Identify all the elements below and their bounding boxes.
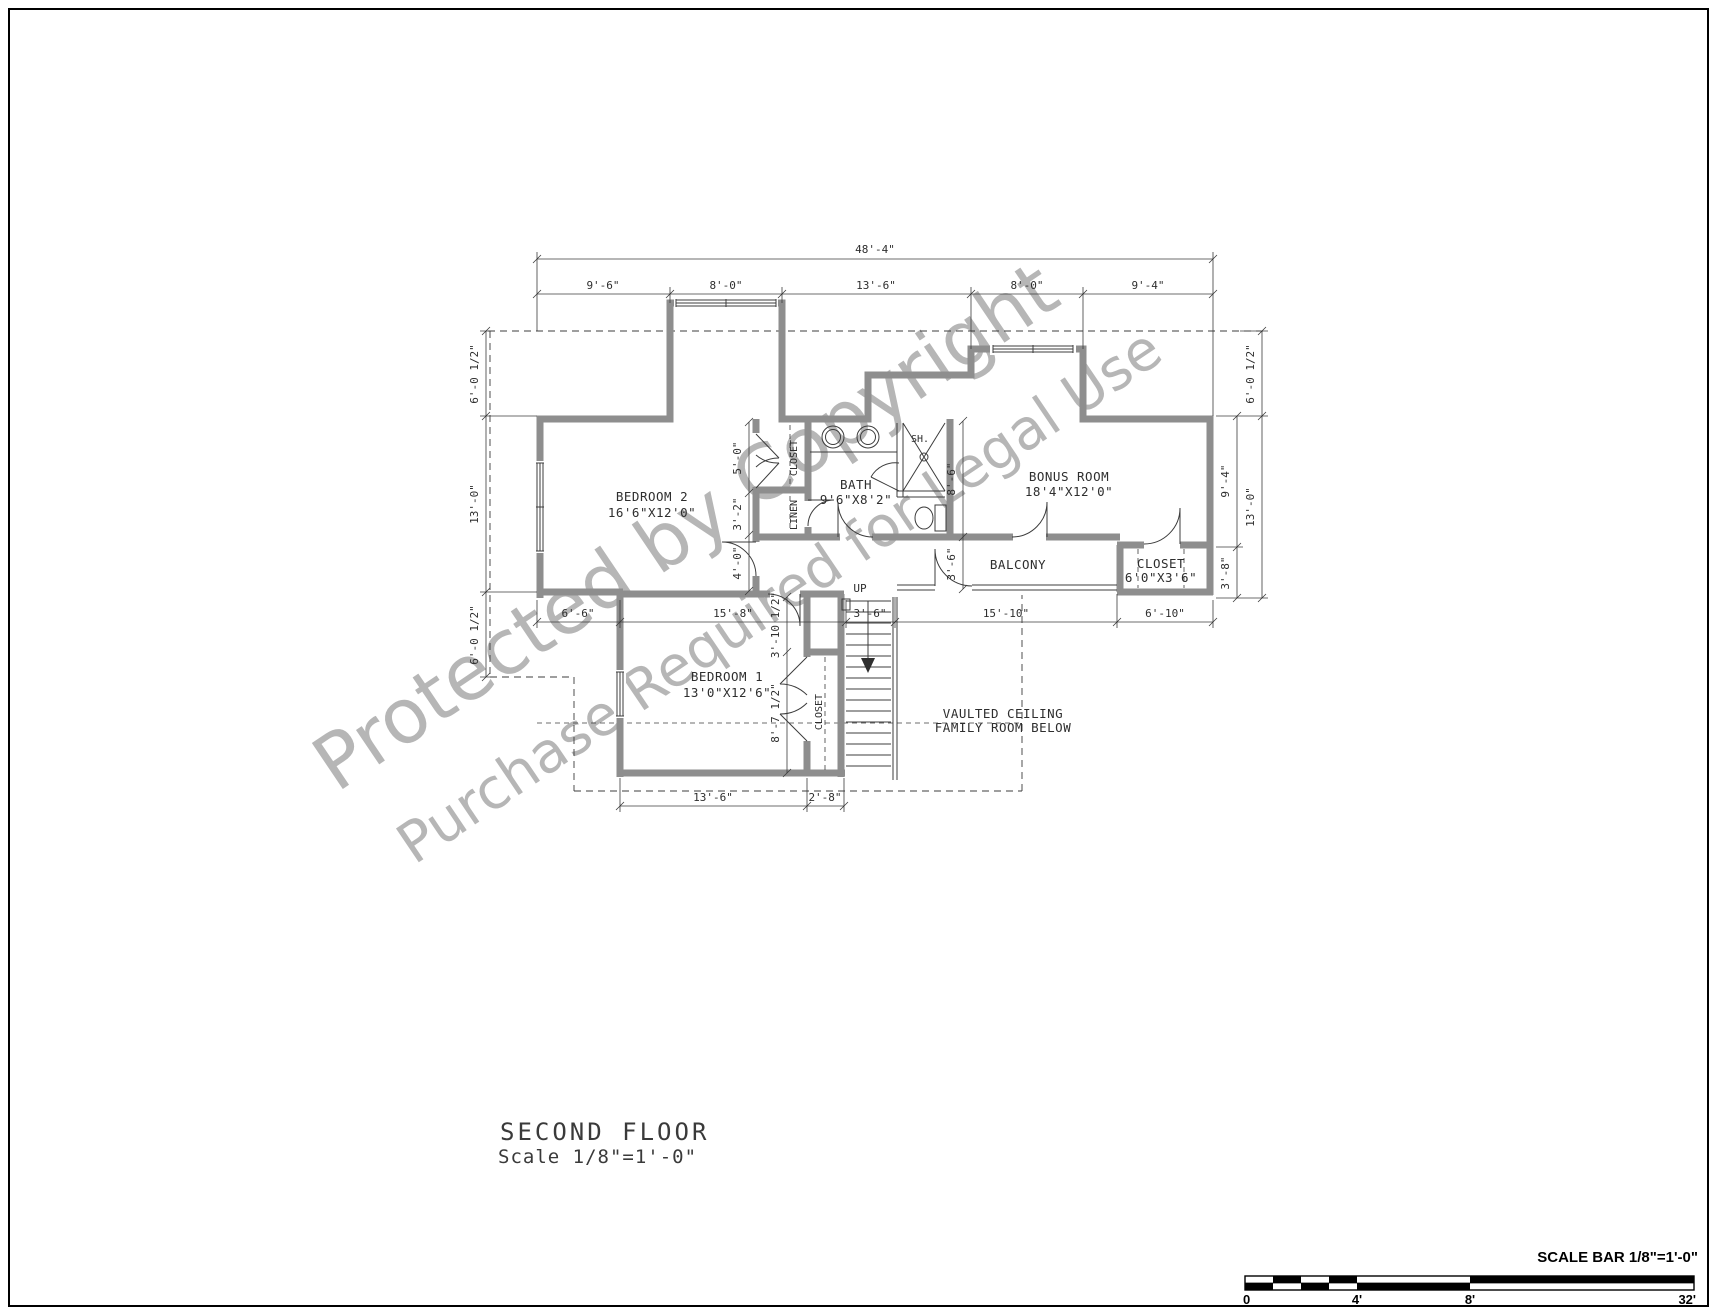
stair-down-arrow-icon: [861, 658, 875, 673]
dim-text: 9'-4": [1131, 279, 1164, 292]
label-bedroom1-size: 13'0"X12'6": [683, 685, 771, 700]
title-block: SECOND FLOOR Scale 1/8"=1'-0": [498, 1118, 709, 1168]
dim-text: 5'-0": [731, 441, 744, 474]
dim-text: 8'-6": [945, 462, 958, 495]
window-glyph: [676, 299, 776, 307]
railing-lines: [897, 585, 1117, 590]
label-bonus-size: 18'4"X12'0": [1025, 484, 1113, 499]
page-scale-note: Scale 1/8"=1'-0": [498, 1146, 697, 1168]
label-bath: BATH: [840, 477, 872, 492]
window-glyph: [616, 672, 624, 716]
window-bay-bonus: [990, 343, 1076, 355]
scale-bar: SCALE BAR 1/8"=1'-0" 0 4' 8' 32': [1243, 1249, 1698, 1307]
door-bonus-closet: [1144, 508, 1180, 544]
dim-text: 9'-4": [1219, 464, 1232, 497]
label-bath-size: 9'6"X8'2": [820, 492, 892, 507]
label-vaulted-ceiling: VAULTED CEILING: [943, 706, 1063, 721]
dim-text: 6'-6": [561, 607, 594, 620]
dim-text: 9'-6": [586, 279, 619, 292]
balcony-railing: [897, 585, 1117, 590]
label-bonus-closet-size: 6'0"X3'6": [1125, 570, 1197, 585]
dim-text: 3'-2": [731, 497, 744, 530]
dim-text: 6'-0 1/2": [468, 605, 481, 665]
dim-text: 13'-6": [856, 279, 896, 292]
scale-tick-8: 8': [1465, 1292, 1475, 1307]
label-bedroom1: BEDROOM 1: [691, 669, 763, 684]
window-glyph: [536, 463, 544, 551]
dim-text: 3'-10 1/2": [769, 592, 782, 658]
door-bedroom1-closet-double: [780, 657, 807, 741]
dim-text: 13'-6": [693, 791, 733, 804]
dim-text: 13'-0": [1244, 487, 1257, 527]
window-bedroom2-west: [534, 461, 546, 553]
dim-text: 8'-7 1/2": [769, 683, 782, 743]
dim-text: 6'-0 1/2": [468, 344, 481, 404]
label-balcony: BALCONY: [990, 557, 1046, 572]
floor-plan-svg: Protected by Copyright Purchase Required…: [0, 0, 1717, 1315]
label-shower: SH.: [911, 434, 929, 445]
scale-bar-label: SCALE BAR 1/8"=1'-0": [1537, 1249, 1698, 1266]
scale-bar-graphic: [1245, 1276, 1694, 1290]
dim-text: 3'-6": [945, 547, 958, 580]
dim-text: 48'-4": [855, 243, 895, 256]
dim-text: 4'-0": [731, 546, 744, 579]
window-glyph: [993, 345, 1073, 353]
label-bedroom2-closet: CLOSET: [789, 440, 800, 476]
dim-text: 6'-10": [1145, 607, 1185, 620]
dim-text: 15'-10": [983, 607, 1029, 620]
dim-bottom-row2: 13'-6" 2'-8": [616, 778, 848, 812]
drawing-sheet: Protected by Copyright Purchase Required…: [0, 0, 1717, 1315]
dim-text: 15'-8": [713, 607, 753, 620]
window-bay-bedroom2: [674, 297, 778, 309]
label-bonus-closet: CLOSET: [1137, 556, 1185, 571]
dim-text: 6'-0 1/2": [1244, 344, 1257, 404]
label-bedroom2: BEDROOM 2: [616, 489, 688, 504]
scale-tick-0: 0: [1243, 1292, 1250, 1307]
label-up: UP: [853, 582, 867, 595]
label-family-room-below: FAMILY ROOM BELOW: [935, 720, 1071, 735]
door-bonus-entry: [1012, 502, 1047, 537]
label-bedroom2-size: 16'6"X12'0": [608, 505, 696, 520]
label-bonus: BONUS ROOM: [1029, 469, 1109, 484]
window-bedroom1-west: [614, 670, 626, 718]
scale-tick-32: 32': [1678, 1292, 1696, 1307]
dim-text: 13'-0": [468, 484, 481, 524]
dim-text: 3'-6": [853, 607, 886, 620]
sheet-border: [9, 9, 1708, 1306]
stairs: [842, 597, 897, 780]
scale-tick-4: 4': [1352, 1292, 1362, 1307]
label-linen: LINEN: [789, 500, 800, 530]
page-title: SECOND FLOOR: [500, 1118, 709, 1146]
dim-right: 6'-0 1/2" 9'-4" 3'-8" 13'-0": [1216, 327, 1268, 602]
dim-text: 8'-0": [1010, 279, 1043, 292]
dim-text: 3'-8": [1219, 556, 1232, 589]
dim-text: 8'-0": [709, 279, 742, 292]
label-bedroom1-closet: CLOSET: [814, 694, 825, 730]
dim-text: 2'-8": [808, 791, 841, 804]
